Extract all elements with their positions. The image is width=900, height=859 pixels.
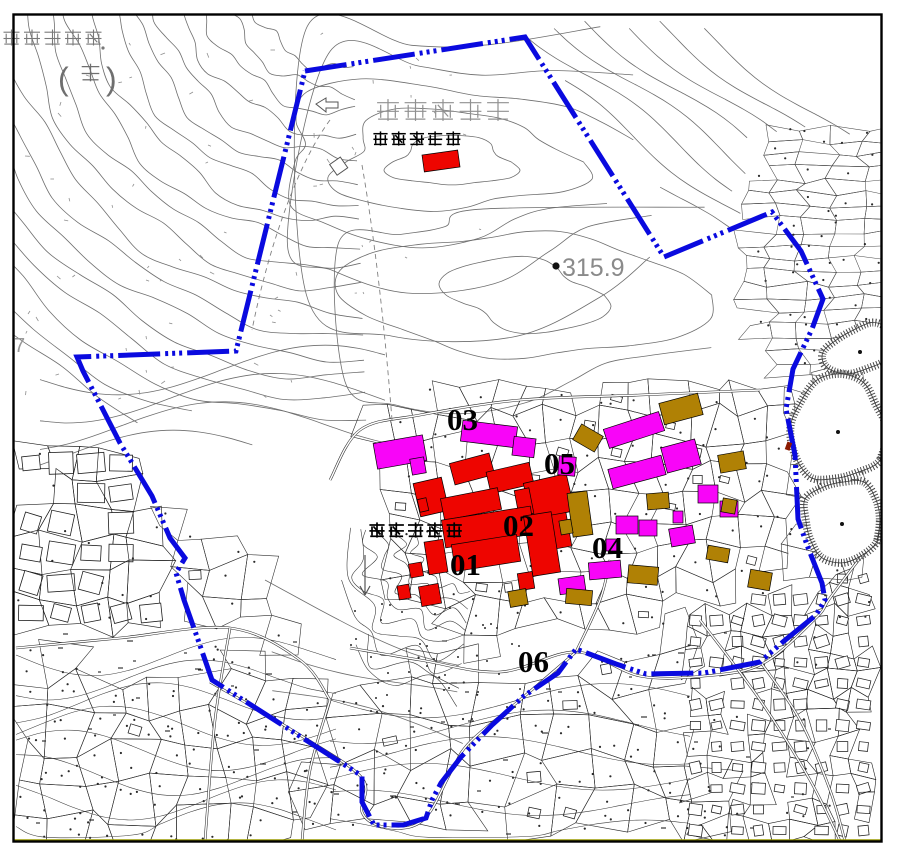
svg-text:03: 03	[447, 402, 478, 437]
svg-text:04: 04	[592, 530, 623, 565]
svg-text:): )	[106, 61, 117, 97]
svg-text:05: 05	[544, 446, 575, 481]
svg-text:01: 01	[450, 547, 481, 582]
svg-text:(: (	[58, 61, 69, 97]
svg-text:02: 02	[503, 508, 534, 543]
svg-text:315.9: 315.9	[562, 254, 625, 282]
svg-text:7: 7	[14, 335, 25, 357]
svg-text:06: 06	[518, 644, 549, 679]
